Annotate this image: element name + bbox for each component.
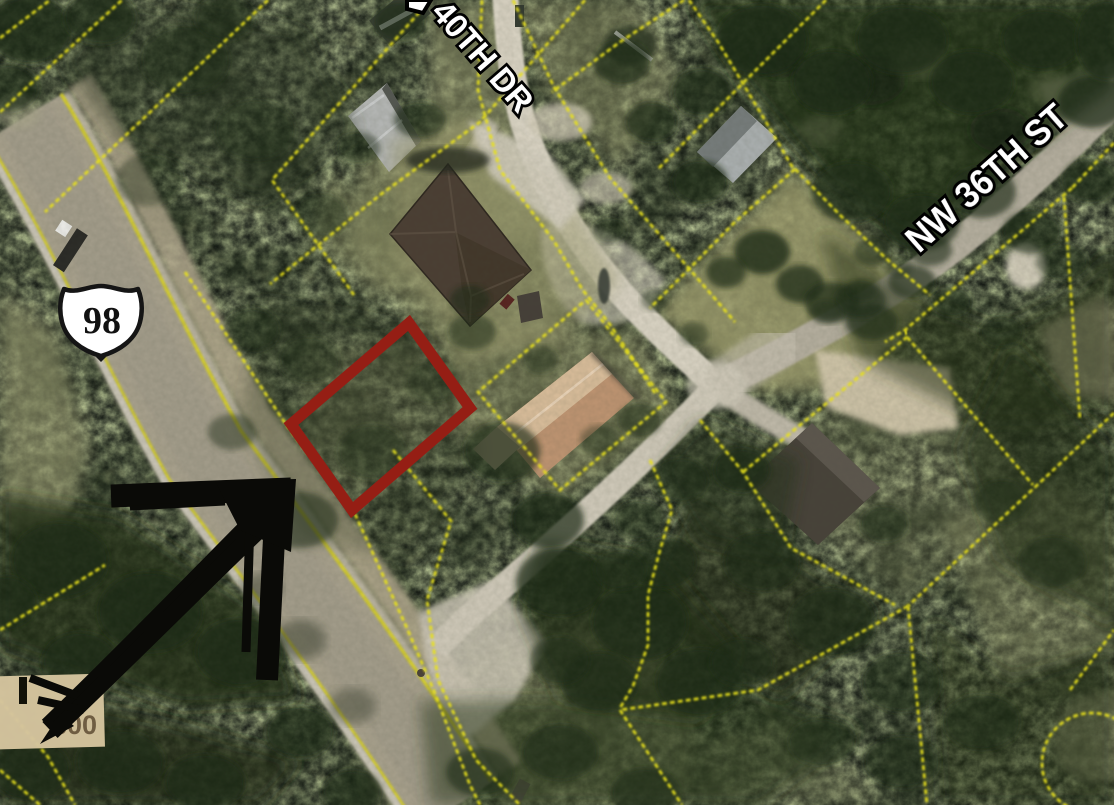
svg-text:98: 98: [83, 300, 121, 342]
